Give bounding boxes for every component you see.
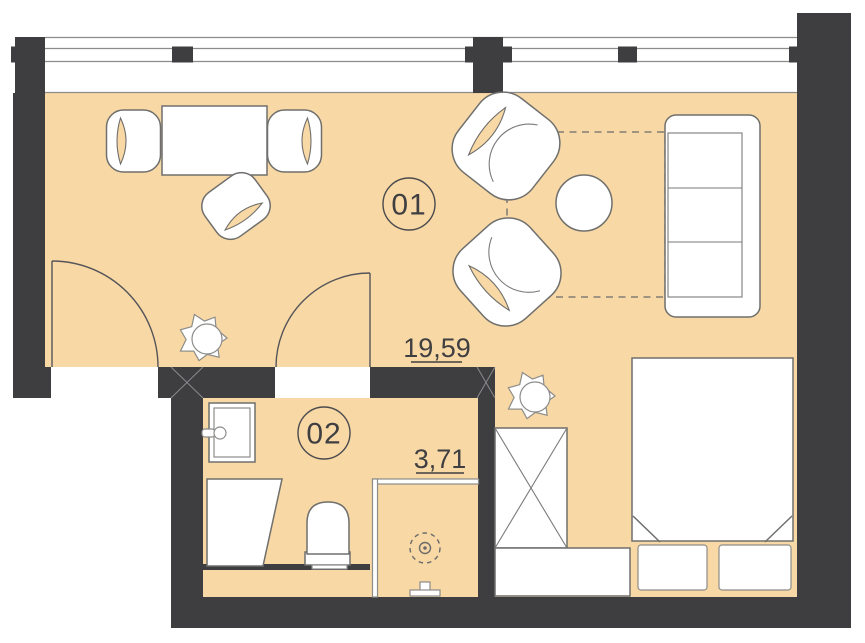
room-02-area: 3,71	[414, 444, 467, 474]
dining-chair-right	[268, 110, 322, 172]
floor-plan-drawing: 01 19,59 02 3,71	[0, 0, 865, 643]
wall-pillar-left	[15, 37, 45, 93]
dining-chair-left	[107, 110, 161, 172]
window-frame-tick	[503, 47, 512, 63]
room-01-area: 19,59	[403, 333, 471, 363]
toilet	[305, 502, 350, 569]
wall-bathroom-right	[478, 398, 495, 597]
wall-room-divider-right	[370, 367, 495, 398]
wall-pier-center	[473, 37, 503, 93]
faucet-icon	[202, 429, 215, 437]
wall-left	[13, 93, 45, 367]
room-01-area-label: 19,59	[403, 333, 471, 363]
room-01-number: 01	[391, 189, 426, 222]
window-wall	[11, 37, 797, 93]
window-frame-tick	[11, 47, 15, 63]
wall-bottom	[171, 597, 851, 628]
pillow	[638, 545, 707, 590]
wall-bathroom-left	[171, 398, 203, 628]
wall-right	[797, 13, 851, 628]
pillow	[719, 545, 791, 590]
floor-plan-page: 01 19,59 02 3,71	[0, 0, 865, 643]
sink	[202, 403, 255, 462]
window-frame-tick	[789, 47, 797, 63]
window-mullion	[618, 47, 637, 63]
room-02-number: 02	[306, 418, 341, 451]
window-mullion	[172, 47, 193, 63]
wardrobe	[495, 428, 567, 548]
coffee-table	[556, 175, 612, 231]
dresser	[495, 548, 630, 596]
room-02-area-label: 3,71	[414, 444, 467, 474]
dining-table	[162, 106, 267, 175]
window-frame-tick	[465, 47, 473, 63]
sofa	[665, 115, 760, 317]
wall-entry-stub	[13, 367, 51, 398]
